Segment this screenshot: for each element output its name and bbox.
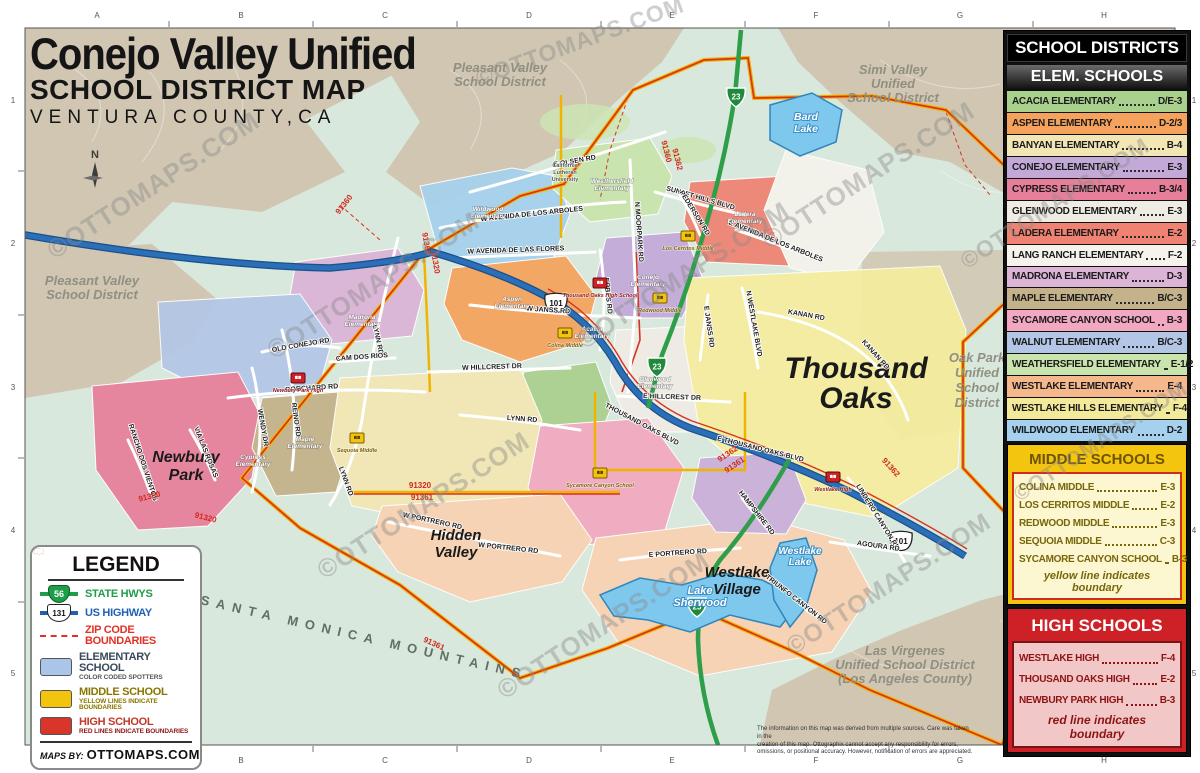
svg-text:A: A bbox=[94, 11, 100, 20]
svg-text:1: 1 bbox=[11, 96, 16, 105]
svg-text:Maple: Maple bbox=[296, 436, 315, 443]
legend-zip: ZIP CODE BOUNDARIES bbox=[40, 625, 192, 647]
svg-text:Lake: Lake bbox=[794, 123, 818, 135]
svg-text:Elementary: Elementary bbox=[574, 333, 609, 340]
elem-row: MAPLE ELEMENTARYB/C-3 bbox=[1007, 288, 1187, 309]
svg-text:Park: Park bbox=[169, 467, 205, 484]
elem-row: GLENWOOD ELEMENTARYE-3 bbox=[1007, 201, 1187, 222]
grid-code: E-2 bbox=[1160, 674, 1175, 685]
svg-text:Redwood Middle: Redwood Middle bbox=[638, 308, 682, 314]
grid-code: D-2 bbox=[1167, 425, 1182, 436]
svg-text:Elementary: Elementary bbox=[494, 303, 529, 310]
elem-row: WESTLAKE ELEMENTARYE-4 bbox=[1007, 376, 1187, 397]
state-hwy-swatch: 56 bbox=[40, 587, 78, 601]
elementary-schools-header: ELEM. SCHOOLS bbox=[1007, 65, 1187, 89]
grid-code: B-4 bbox=[1167, 140, 1182, 151]
middle-row: COLINA MIDDLEE-3 bbox=[1019, 478, 1175, 496]
high-schools-list: WESTLAKE HIGHF-4 THOUSAND OAKS HIGHE-2 N… bbox=[1012, 641, 1182, 748]
svg-text:Unified: Unified bbox=[871, 76, 916, 91]
svg-text:Westlake: Westlake bbox=[778, 546, 822, 557]
legend-us-hwy: 131 US HIGHWAY bbox=[40, 606, 192, 620]
dot-leader bbox=[1123, 338, 1154, 348]
svg-text:School: School bbox=[955, 380, 999, 395]
middle-row: SYCAMORE CANYON SCHOOLB-3 bbox=[1019, 550, 1175, 568]
svg-text:Westlake High: Westlake High bbox=[814, 487, 852, 493]
dot-leader bbox=[1133, 675, 1158, 685]
svg-text:Pleasant Valley: Pleasant Valley bbox=[453, 60, 548, 75]
disclaimer-text: The information on this map was derived … bbox=[757, 726, 975, 757]
svg-text:E: E bbox=[669, 11, 674, 20]
maps-by-credit: MAPS BY: OTTOMAPS.COM bbox=[40, 741, 192, 762]
svg-text:4: 4 bbox=[11, 526, 16, 535]
elem-row: WILDWOOD ELEMENTARYD-2 bbox=[1007, 420, 1187, 441]
svg-text:H: H bbox=[1101, 11, 1107, 20]
svg-text:E: E bbox=[669, 756, 674, 765]
svg-text:Valley: Valley bbox=[435, 544, 478, 561]
title-line-2: SCHOOL DISTRICT MAP bbox=[30, 76, 416, 104]
dot-leader bbox=[1119, 96, 1155, 106]
school-name: CONEJO ELEMENTARY bbox=[1012, 162, 1120, 173]
svg-text:Pleasant Valley: Pleasant Valley bbox=[45, 273, 140, 288]
school-name: LOS CERRITOS MIDDLE bbox=[1019, 500, 1129, 511]
svg-text:D: D bbox=[526, 11, 532, 20]
grid-code: B-3 bbox=[1172, 554, 1187, 565]
school-name: WESTLAKE ELEMENTARY bbox=[1012, 381, 1133, 392]
legend-state-hwy: 56 STATE HWYS bbox=[40, 587, 192, 601]
school-name: LADERA ELEMENTARY bbox=[1012, 228, 1119, 239]
svg-text:C: C bbox=[382, 11, 388, 20]
svg-text:Colina Middle: Colina Middle bbox=[547, 343, 583, 349]
elem-row: SYCAMORE CANYON SCHOOLB-3 bbox=[1007, 310, 1187, 331]
elementary-swatch bbox=[40, 658, 72, 676]
school-name: GLENWOOD ELEMENTARY bbox=[1012, 206, 1137, 217]
svg-text:Elementary: Elementary bbox=[287, 443, 322, 450]
svg-text:Thousand: Thousand bbox=[784, 352, 928, 385]
middle-schools-section: MIDDLE SCHOOLS COLINA MIDDLEE-3 LOS CERR… bbox=[1007, 444, 1187, 605]
dot-leader bbox=[1115, 118, 1156, 128]
school-name: WALNUT ELEMENTARY bbox=[1012, 337, 1120, 348]
us-shield-icon: 131 bbox=[47, 604, 71, 622]
svg-text:Weathersfield: Weathersfield bbox=[591, 178, 635, 185]
svg-text:Oaks: Oaks bbox=[819, 382, 892, 415]
svg-text:Acacia: Acacia bbox=[581, 326, 603, 333]
dot-leader bbox=[1132, 272, 1164, 282]
grid-code: E-2 bbox=[1167, 228, 1182, 239]
elem-row: MADRONA ELEMENTARYD-3 bbox=[1007, 267, 1187, 288]
middle-row: LOS CERRITOS MIDDLEE-2 bbox=[1019, 496, 1175, 514]
school-name: ACACIA ELEMENTARY bbox=[1012, 96, 1116, 107]
middle-row: REDWOOD MIDDLEE-3 bbox=[1019, 514, 1175, 532]
svg-text:Los Cerritos Middle: Los Cerritos Middle bbox=[662, 246, 713, 252]
svg-text:C: C bbox=[382, 756, 388, 765]
svg-text:B: B bbox=[238, 756, 243, 765]
dot-leader bbox=[1097, 482, 1157, 492]
svg-text:Sherwood: Sherwood bbox=[673, 597, 726, 609]
disclaimer-line: The information on this map was derived … bbox=[757, 726, 975, 742]
dot-leader bbox=[1136, 382, 1164, 392]
svg-text:Elementary: Elementary bbox=[235, 461, 270, 468]
state-shield-icon: 56 bbox=[48, 585, 70, 603]
svg-text:F: F bbox=[814, 11, 819, 20]
title-line-3: VENTURA COUNTY,CA bbox=[30, 108, 416, 127]
high-label: HIGH SCHOOL bbox=[79, 717, 188, 728]
svg-text:B: B bbox=[238, 11, 243, 20]
elementary-schools-list: ACACIA ELEMENTARYD/E-3 ASPEN ELEMENTARYD… bbox=[1007, 91, 1187, 441]
high-row: WESTLAKE HIGHF-4 bbox=[1019, 648, 1175, 669]
svg-text:Elementary: Elementary bbox=[637, 383, 672, 390]
grid-code: E-3 bbox=[1167, 162, 1182, 173]
svg-text:Sequoia Middle: Sequoia Middle bbox=[337, 448, 377, 454]
high-swatch bbox=[40, 717, 72, 735]
svg-text:23: 23 bbox=[732, 93, 741, 102]
panel-header: SCHOOL DISTRICTS bbox=[1007, 34, 1187, 62]
school-name: CYPRESS ELEMENTARY bbox=[1012, 184, 1125, 195]
state-hwy-label: STATE HWYS bbox=[85, 589, 152, 600]
grid-code: B-3 bbox=[1167, 315, 1182, 326]
dot-leader bbox=[1166, 404, 1170, 414]
brand-name[interactable]: OTTOMAPS.COM bbox=[87, 747, 200, 762]
school-name: SYCAMORE CANYON SCHOOL bbox=[1019, 554, 1162, 565]
svg-text:Oak Park: Oak Park bbox=[949, 350, 1006, 365]
book-icon bbox=[32, 547, 46, 557]
school-name: SEQUOIA MIDDLE bbox=[1019, 536, 1102, 547]
svg-text:Bard: Bard bbox=[794, 111, 819, 123]
dot-leader bbox=[1138, 426, 1164, 436]
compass-n-label: N bbox=[91, 149, 99, 161]
legend-middle: MIDDLE SCHOOL YELLOW LINES INDICATE BOUN… bbox=[40, 687, 192, 712]
svg-text:Unified School District: Unified School District bbox=[835, 657, 975, 672]
grid-code: F-4 bbox=[1173, 403, 1187, 414]
svg-text:Lake: Lake bbox=[789, 557, 812, 568]
svg-text:School District: School District bbox=[847, 90, 939, 105]
high-schools-header: HIGH SCHOOLS bbox=[1012, 613, 1182, 641]
svg-text:School District: School District bbox=[46, 287, 138, 302]
title-line-1: Conejo Valley Unified bbox=[30, 32, 416, 77]
dot-leader bbox=[1112, 518, 1157, 528]
legend-title: LEGEND bbox=[48, 553, 184, 581]
dot-leader bbox=[1140, 206, 1164, 216]
dot-leader bbox=[1128, 184, 1156, 194]
high-boundary-note: red line indicates boundary bbox=[1019, 711, 1175, 741]
legend-elementary: ELEMENTARY SCHOOL COLOR CODED SPOTTERS bbox=[40, 652, 192, 682]
high-row: THOUSAND OAKS HIGHE-2 bbox=[1019, 669, 1175, 690]
school-name: WESTLAKE HILLS ELEMENTARY bbox=[1012, 403, 1163, 414]
svg-text:University: University bbox=[552, 177, 580, 183]
svg-text:Elementary: Elementary bbox=[470, 213, 505, 220]
elem-row: ASPEN ELEMENTARYD-2/3 bbox=[1007, 113, 1187, 134]
grid-code: D-2/3 bbox=[1159, 118, 1182, 129]
svg-text:Las Virgenes: Las Virgenes bbox=[865, 643, 945, 658]
grid-code: F-4 bbox=[1161, 653, 1175, 664]
map-poster: N 101 101 23 23 23 Pleasant Valley Schoo… bbox=[0, 0, 1200, 773]
grid-code: C-3 bbox=[1160, 536, 1175, 547]
grid-code: D/E-3 bbox=[1158, 96, 1182, 107]
svg-text:Simi Valley: Simi Valley bbox=[859, 62, 928, 77]
svg-text:H: H bbox=[1101, 756, 1107, 765]
legend-box: LEGEND 56 STATE HWYS 131 US HIGHWAY ZIP … bbox=[30, 545, 202, 770]
svg-text:2: 2 bbox=[1192, 239, 1197, 248]
grid-code: B/C-3 bbox=[1157, 293, 1182, 304]
svg-text:Elementary: Elementary bbox=[344, 321, 379, 328]
svg-text:23: 23 bbox=[653, 363, 662, 372]
legend-high: HIGH SCHOOL RED LINES INDICATE BOUNDARIE… bbox=[40, 717, 192, 736]
middle-label: MIDDLE SCHOOL bbox=[79, 687, 192, 698]
elem-row: LADERA ELEMENTARYE-2 bbox=[1007, 223, 1187, 244]
elementary-label: ELEMENTARY SCHOOL bbox=[79, 652, 192, 674]
grid-code: E-3 bbox=[1160, 518, 1175, 529]
school-districts-panel: SCHOOL DISTRICTS ELEM. SCHOOLS ACACIA EL… bbox=[1003, 30, 1191, 757]
svg-text:Newbury Park High: Newbury Park High bbox=[273, 388, 324, 394]
svg-text:5: 5 bbox=[11, 669, 16, 678]
svg-text:Ladera: Ladera bbox=[734, 211, 756, 218]
dot-leader bbox=[1105, 536, 1157, 546]
svg-text:Westlake: Westlake bbox=[705, 564, 770, 581]
grid-code: E-4 bbox=[1167, 381, 1182, 392]
svg-text:District: District bbox=[955, 395, 1000, 410]
dot-leader bbox=[1146, 250, 1164, 260]
high-row: NEWBURY PARK HIGHB-3 bbox=[1019, 690, 1175, 711]
elem-row: WEATHERSFIELD ELEMENTARYE-1/2 bbox=[1007, 354, 1187, 375]
middle-schools-header: MIDDLE SCHOOLS bbox=[1012, 449, 1182, 472]
grid-code: D-3 bbox=[1167, 271, 1182, 282]
svg-text:Madrona: Madrona bbox=[348, 314, 375, 321]
svg-text:Lutheran: Lutheran bbox=[553, 170, 577, 176]
svg-text:Glenwood: Glenwood bbox=[639, 376, 671, 383]
svg-text:Wildwood: Wildwood bbox=[473, 206, 505, 213]
svg-text:G: G bbox=[957, 756, 963, 765]
dot-leader bbox=[1158, 316, 1164, 326]
school-name: REDWOOD MIDDLE bbox=[1019, 518, 1109, 529]
svg-text:Sycamore Canyon School: Sycamore Canyon School bbox=[566, 483, 634, 489]
dot-leader bbox=[1126, 696, 1157, 706]
dot-leader bbox=[1122, 140, 1163, 150]
middle-boundary-note: yellow line indicates boundary bbox=[1019, 568, 1175, 594]
svg-text:G: G bbox=[957, 11, 963, 20]
svg-text:3: 3 bbox=[1192, 383, 1197, 392]
school-name: COLINA MIDDLE bbox=[1019, 482, 1094, 493]
us-hwy-swatch: 131 bbox=[40, 606, 78, 620]
high-schools-section: HIGH SCHOOLS WESTLAKE HIGHF-4 THOUSAND O… bbox=[1007, 608, 1187, 753]
svg-text:91320: 91320 bbox=[409, 481, 432, 490]
svg-text:(Los Angeles County): (Los Angeles County) bbox=[838, 671, 972, 686]
school-name: WEATHERSFIELD ELEMENTARY bbox=[1012, 359, 1161, 370]
grid-code: E-2 bbox=[1160, 500, 1175, 511]
svg-text:91361: 91361 bbox=[411, 493, 434, 502]
grid-code: B-3/4 bbox=[1159, 184, 1182, 195]
school-name: SYCAMORE CANYON SCHOOL bbox=[1012, 315, 1155, 326]
grid-code: B-3 bbox=[1160, 695, 1175, 706]
svg-text:Conejo: Conejo bbox=[637, 274, 659, 281]
school-name: MAPLE ELEMENTARY bbox=[1012, 293, 1113, 304]
svg-text:5: 5 bbox=[1192, 669, 1197, 678]
svg-text:School District: School District bbox=[454, 74, 546, 89]
high-sublabel: RED LINES INDICATE BOUNDARIES bbox=[79, 729, 188, 736]
grid-code: E-3 bbox=[1167, 206, 1182, 217]
dot-leader bbox=[1116, 294, 1155, 304]
school-name: MADRONA ELEMENTARY bbox=[1012, 271, 1129, 282]
elem-row: CYPRESS ELEMENTARYB-3/4 bbox=[1007, 179, 1187, 200]
svg-text:1: 1 bbox=[1192, 96, 1197, 105]
school-name: WESTLAKE HIGH bbox=[1019, 653, 1099, 664]
middle-swatch bbox=[40, 690, 72, 708]
svg-text:2: 2 bbox=[11, 239, 16, 248]
elementary-schools-section: ELEM. SCHOOLS ACACIA ELEMENTARYD/E-3 ASP… bbox=[1007, 65, 1187, 441]
grid-code: F-2 bbox=[1168, 250, 1182, 261]
school-name: WILDWOOD ELEMENTARY bbox=[1012, 425, 1135, 436]
middle-schools-list: COLINA MIDDLEE-3 LOS CERRITOS MIDDLEE-2 … bbox=[1012, 472, 1182, 600]
elem-row: WALNUT ELEMENTARYB/C-3 bbox=[1007, 332, 1187, 353]
svg-text:D: D bbox=[526, 756, 532, 765]
middle-sublabel: YELLOW LINES INDICATE BOUNDARIES bbox=[79, 699, 192, 712]
dot-leader bbox=[1165, 554, 1169, 564]
svg-text:California: California bbox=[552, 163, 578, 169]
dot-leader bbox=[1102, 654, 1158, 664]
school-name: LANG RANCH ELEMENTARY bbox=[1012, 250, 1143, 261]
school-name: ASPEN ELEMENTARY bbox=[1012, 118, 1112, 129]
grid-code: E-1/2 bbox=[1171, 359, 1193, 370]
elementary-sublabel: COLOR CODED SPOTTERS bbox=[79, 675, 192, 682]
dot-leader bbox=[1122, 228, 1165, 238]
elem-row: WESTLAKE HILLS ELEMENTARYF-4 bbox=[1007, 398, 1187, 419]
elem-row: CONEJO ELEMENTARYE-3 bbox=[1007, 157, 1187, 178]
grid-code: B/C-3 bbox=[1157, 337, 1182, 348]
svg-text:Elementary: Elementary bbox=[630, 281, 665, 288]
zip-label: ZIP CODE BOUNDARIES bbox=[85, 625, 192, 647]
svg-text:4: 4 bbox=[1192, 526, 1197, 535]
us-hwy-label: US HIGHWAY bbox=[85, 608, 152, 619]
dot-leader bbox=[1164, 360, 1168, 370]
svg-text:Elementary: Elementary bbox=[594, 185, 629, 192]
svg-text:Lake: Lake bbox=[687, 585, 712, 597]
svg-text:Aspen: Aspen bbox=[501, 296, 522, 303]
elem-row: LANG RANCH ELEMENTARYF-2 bbox=[1007, 245, 1187, 266]
svg-text:F: F bbox=[814, 756, 819, 765]
school-name: THOUSAND OAKS HIGH bbox=[1019, 674, 1130, 685]
svg-text:Cypress: Cypress bbox=[240, 454, 266, 461]
map-title-block: Conejo Valley Unified SCHOOL DISTRICT MA… bbox=[30, 32, 416, 127]
school-name: NEWBURY PARK HIGH bbox=[1019, 695, 1123, 706]
zip-boundary-swatch bbox=[40, 635, 78, 637]
elem-row: BANYAN ELEMENTARYB-4 bbox=[1007, 135, 1187, 156]
elem-row: ACACIA ELEMENTARYD/E-3 bbox=[1007, 91, 1187, 112]
svg-text:3: 3 bbox=[11, 383, 16, 392]
middle-row: SEQUOIA MIDDLEC-3 bbox=[1019, 532, 1175, 550]
disclaimer-line: omissions, or positional accuracy. Howev… bbox=[757, 749, 975, 757]
svg-text:Thousand Oaks High School: Thousand Oaks High School bbox=[563, 293, 638, 299]
svg-text:Elementary: Elementary bbox=[727, 218, 762, 225]
grid-code: E-3 bbox=[1160, 482, 1175, 493]
school-name: BANYAN ELEMENTARY bbox=[1012, 140, 1119, 151]
svg-text:Unified: Unified bbox=[955, 365, 1000, 380]
svg-text:Village: Village bbox=[713, 581, 761, 598]
disclaimer-line: creation of this map. Ottographix cannot… bbox=[757, 742, 975, 750]
maps-by-label: MAPS BY: bbox=[40, 751, 84, 761]
dot-leader bbox=[1132, 500, 1157, 510]
dot-leader bbox=[1123, 162, 1165, 172]
